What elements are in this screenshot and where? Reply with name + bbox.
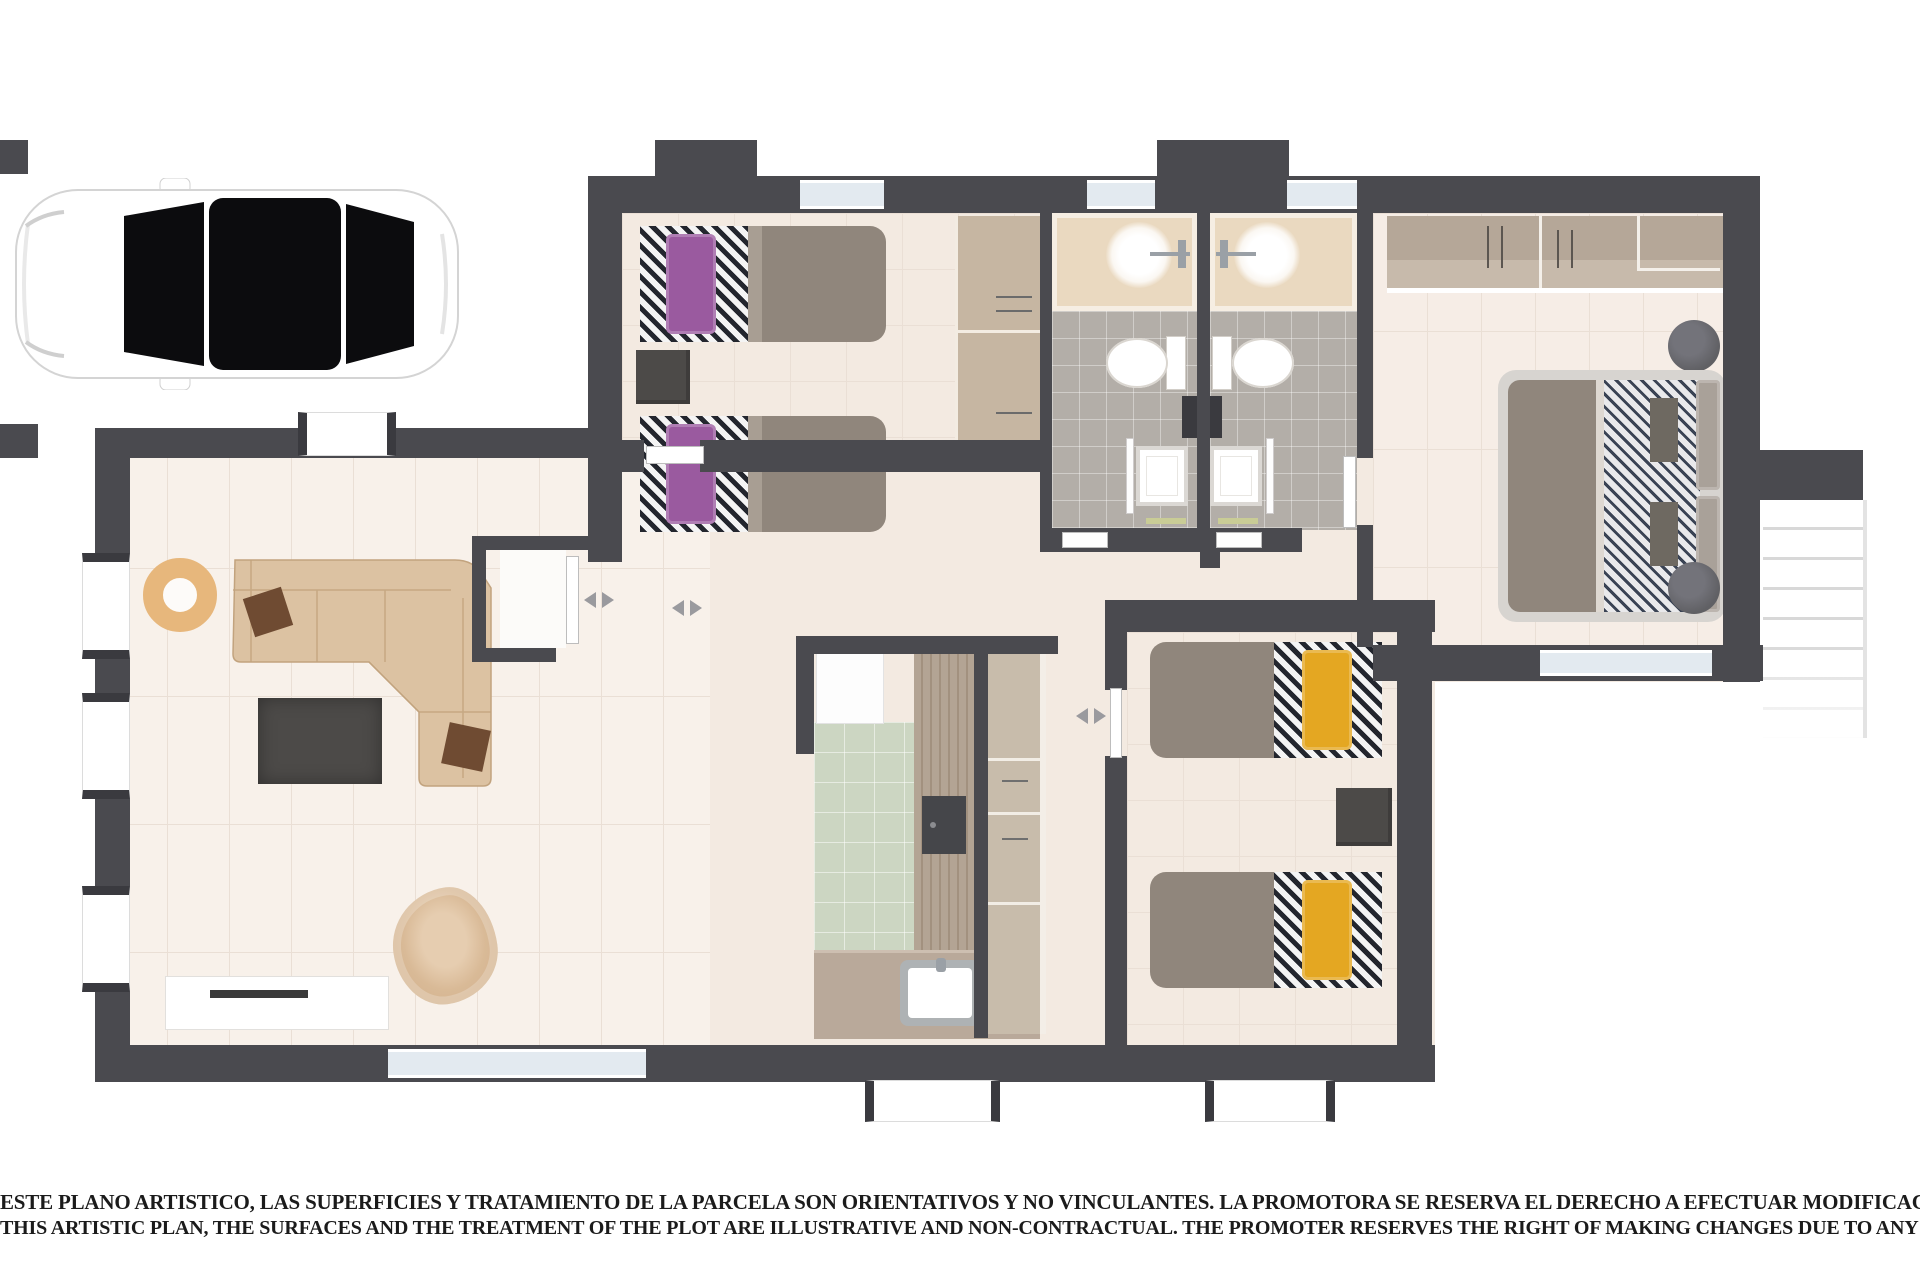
master-sheet-fold [1596, 380, 1604, 612]
bedroom2-wardrobe [955, 216, 1043, 456]
closet-rail [1571, 230, 1573, 268]
wall-north [588, 176, 1760, 213]
door-swing-arrows-bedroom3 [1076, 708, 1106, 724]
wall-bedroom3-west-upper [1105, 632, 1127, 690]
closet-rail [1487, 226, 1489, 268]
window-bathroom2 [1287, 180, 1357, 209]
door-bathroom2 [1216, 532, 1262, 548]
wall-kitchen-north [796, 636, 1058, 654]
wall-north-pillar [1157, 140, 1289, 178]
purple-pillow [666, 424, 716, 524]
master-closet [1387, 216, 1723, 294]
wall-entry-west [472, 536, 486, 662]
wall-entry-south [472, 648, 556, 662]
wall-stair-landing [1723, 450, 1863, 500]
wall-south [690, 1045, 1435, 1082]
unit-handle [1002, 780, 1028, 782]
window-bay-living-west [82, 553, 130, 659]
bed-duvet [1150, 872, 1288, 988]
closet-rail [1557, 230, 1559, 268]
window-bay-living-west [82, 886, 130, 992]
bathroom1-shower-tray [1136, 446, 1188, 506]
floor-plan-page: ESTE PLANO ARTISTICO, LAS SUPERFICIES Y … [0, 0, 1920, 1280]
entry-floor [500, 550, 566, 648]
disclaimer-line-spanish: ESTE PLANO ARTISTICO, LAS SUPERFICIES Y … [0, 1190, 1920, 1215]
master-pillow-top [1696, 380, 1720, 490]
bathroom2-toilet [1232, 338, 1294, 388]
staircase-edge [1863, 500, 1867, 738]
wardrobe-handle [996, 310, 1032, 312]
staircase-fade [1763, 643, 1863, 738]
unit-handle [1002, 838, 1028, 840]
bathroom1-towel-bar [1146, 518, 1186, 524]
sink-basin [908, 968, 972, 1018]
bed-duvet [748, 416, 886, 532]
bed-duvet [748, 226, 886, 342]
car-windshield [124, 202, 204, 366]
yellow-pillow [1302, 650, 1352, 750]
bedroom2-bed2 [640, 416, 872, 532]
kitchen-sink [900, 960, 980, 1026]
master-cushion-bottom [1650, 502, 1678, 566]
purple-pillow [666, 234, 716, 334]
tv-console [165, 976, 389, 1030]
unit-shelf-line [988, 812, 1040, 815]
bathroom1-faucet-body [1178, 240, 1186, 268]
wall-bedroom2-south [700, 440, 1052, 472]
window-bay-south [1205, 1080, 1335, 1122]
bathroom2-faucet-body [1220, 240, 1228, 268]
wardrobe-handle [996, 296, 1032, 298]
wall-bedroom3-east [1397, 632, 1432, 1048]
window-living-south [388, 1049, 646, 1078]
master-cushion-top [1650, 398, 1678, 462]
closet-front-edge [1387, 288, 1723, 293]
wall-kitchen-west [796, 636, 814, 754]
door-bedroom3 [1110, 688, 1122, 758]
sofa-throw-pillow [441, 722, 491, 772]
window-bathroom1 [1087, 180, 1155, 209]
window-bay-south [865, 1080, 1000, 1122]
wall-bedroom3-west-lower [1105, 756, 1127, 1048]
kitchen-tall-units [988, 654, 1046, 1034]
wardrobe-handle [996, 412, 1032, 414]
unit-shelf-line [988, 758, 1040, 761]
staircase [1763, 500, 1863, 738]
wall-bedroom2-south-stub [622, 440, 644, 472]
bedroom3-nightstand [1336, 788, 1392, 846]
closet-rail [1501, 226, 1503, 268]
door-master [1343, 456, 1356, 528]
window-master-south [1540, 650, 1712, 676]
bathroom2-shower-tray [1210, 446, 1262, 506]
wall-edge-block [0, 140, 28, 174]
car-roof [209, 198, 341, 370]
bathroom1-shower-screen [1126, 438, 1134, 514]
bed-duvet [1150, 642, 1288, 758]
window-bay-living-north [298, 412, 396, 456]
wardrobe-divider [958, 330, 1043, 333]
wall-entry-north [486, 536, 590, 550]
bathroom2-toilet-tank [1212, 336, 1232, 390]
bathroom1-toilet [1106, 338, 1168, 388]
closet-divider [1539, 216, 1542, 288]
wall-hall-corner [588, 440, 622, 562]
unit-shelf-line [988, 902, 1040, 905]
car-top-view [12, 178, 462, 390]
kitchen-floor [814, 722, 914, 952]
wall-bedroom2-west [588, 176, 622, 462]
bedroom3-bed1 [1150, 642, 1382, 758]
door-bedroom2 [646, 446, 704, 464]
kitchen-fridge [816, 652, 884, 724]
wall-bathrooms-shared [1197, 213, 1210, 530]
master-duvet [1508, 380, 1600, 612]
bedroom2-bed1 [640, 226, 872, 342]
window-bay-living-west [82, 693, 130, 799]
door-swing-arrows-hall [672, 600, 702, 616]
car-rear-window [346, 204, 414, 364]
bedroom3-bed2 [1150, 872, 1382, 988]
wall-north-pillar [655, 140, 757, 178]
bathroom1-toilet-tank [1166, 336, 1186, 390]
yellow-pillow [1302, 880, 1352, 980]
bathroom2-towel-bar [1218, 518, 1258, 524]
coffee-table [258, 698, 382, 784]
wall-bedroom3-north [1105, 600, 1435, 632]
wall-master-west-upper [1357, 176, 1373, 458]
disclaimer-line-english: THIS ARTISTIC PLAN, THE SURFACES AND THE… [0, 1217, 1920, 1240]
bedroom2-nightstand [636, 350, 690, 404]
stove-knob [930, 822, 936, 828]
wall-edge-block [0, 424, 38, 458]
round-rug-chair [143, 558, 217, 632]
master-round-stool-top [1668, 320, 1720, 372]
master-round-stool-bottom [1668, 562, 1720, 614]
bathroom2-shower-screen [1266, 438, 1274, 514]
tv-screen [210, 990, 308, 998]
kitchen-stove [922, 796, 966, 854]
door-bathroom1 [1062, 532, 1108, 548]
wall-bedroom2-bath-divider [1040, 213, 1052, 530]
window-bedroom2 [800, 180, 884, 209]
wall-bath-south-stub [1200, 552, 1220, 568]
door-entry [566, 556, 579, 644]
wall-kitchen-divider [974, 636, 988, 1038]
closet-shelf-edge [1637, 216, 1720, 271]
door-swing-arrows-entry [584, 592, 614, 608]
sink-faucet [936, 958, 946, 972]
